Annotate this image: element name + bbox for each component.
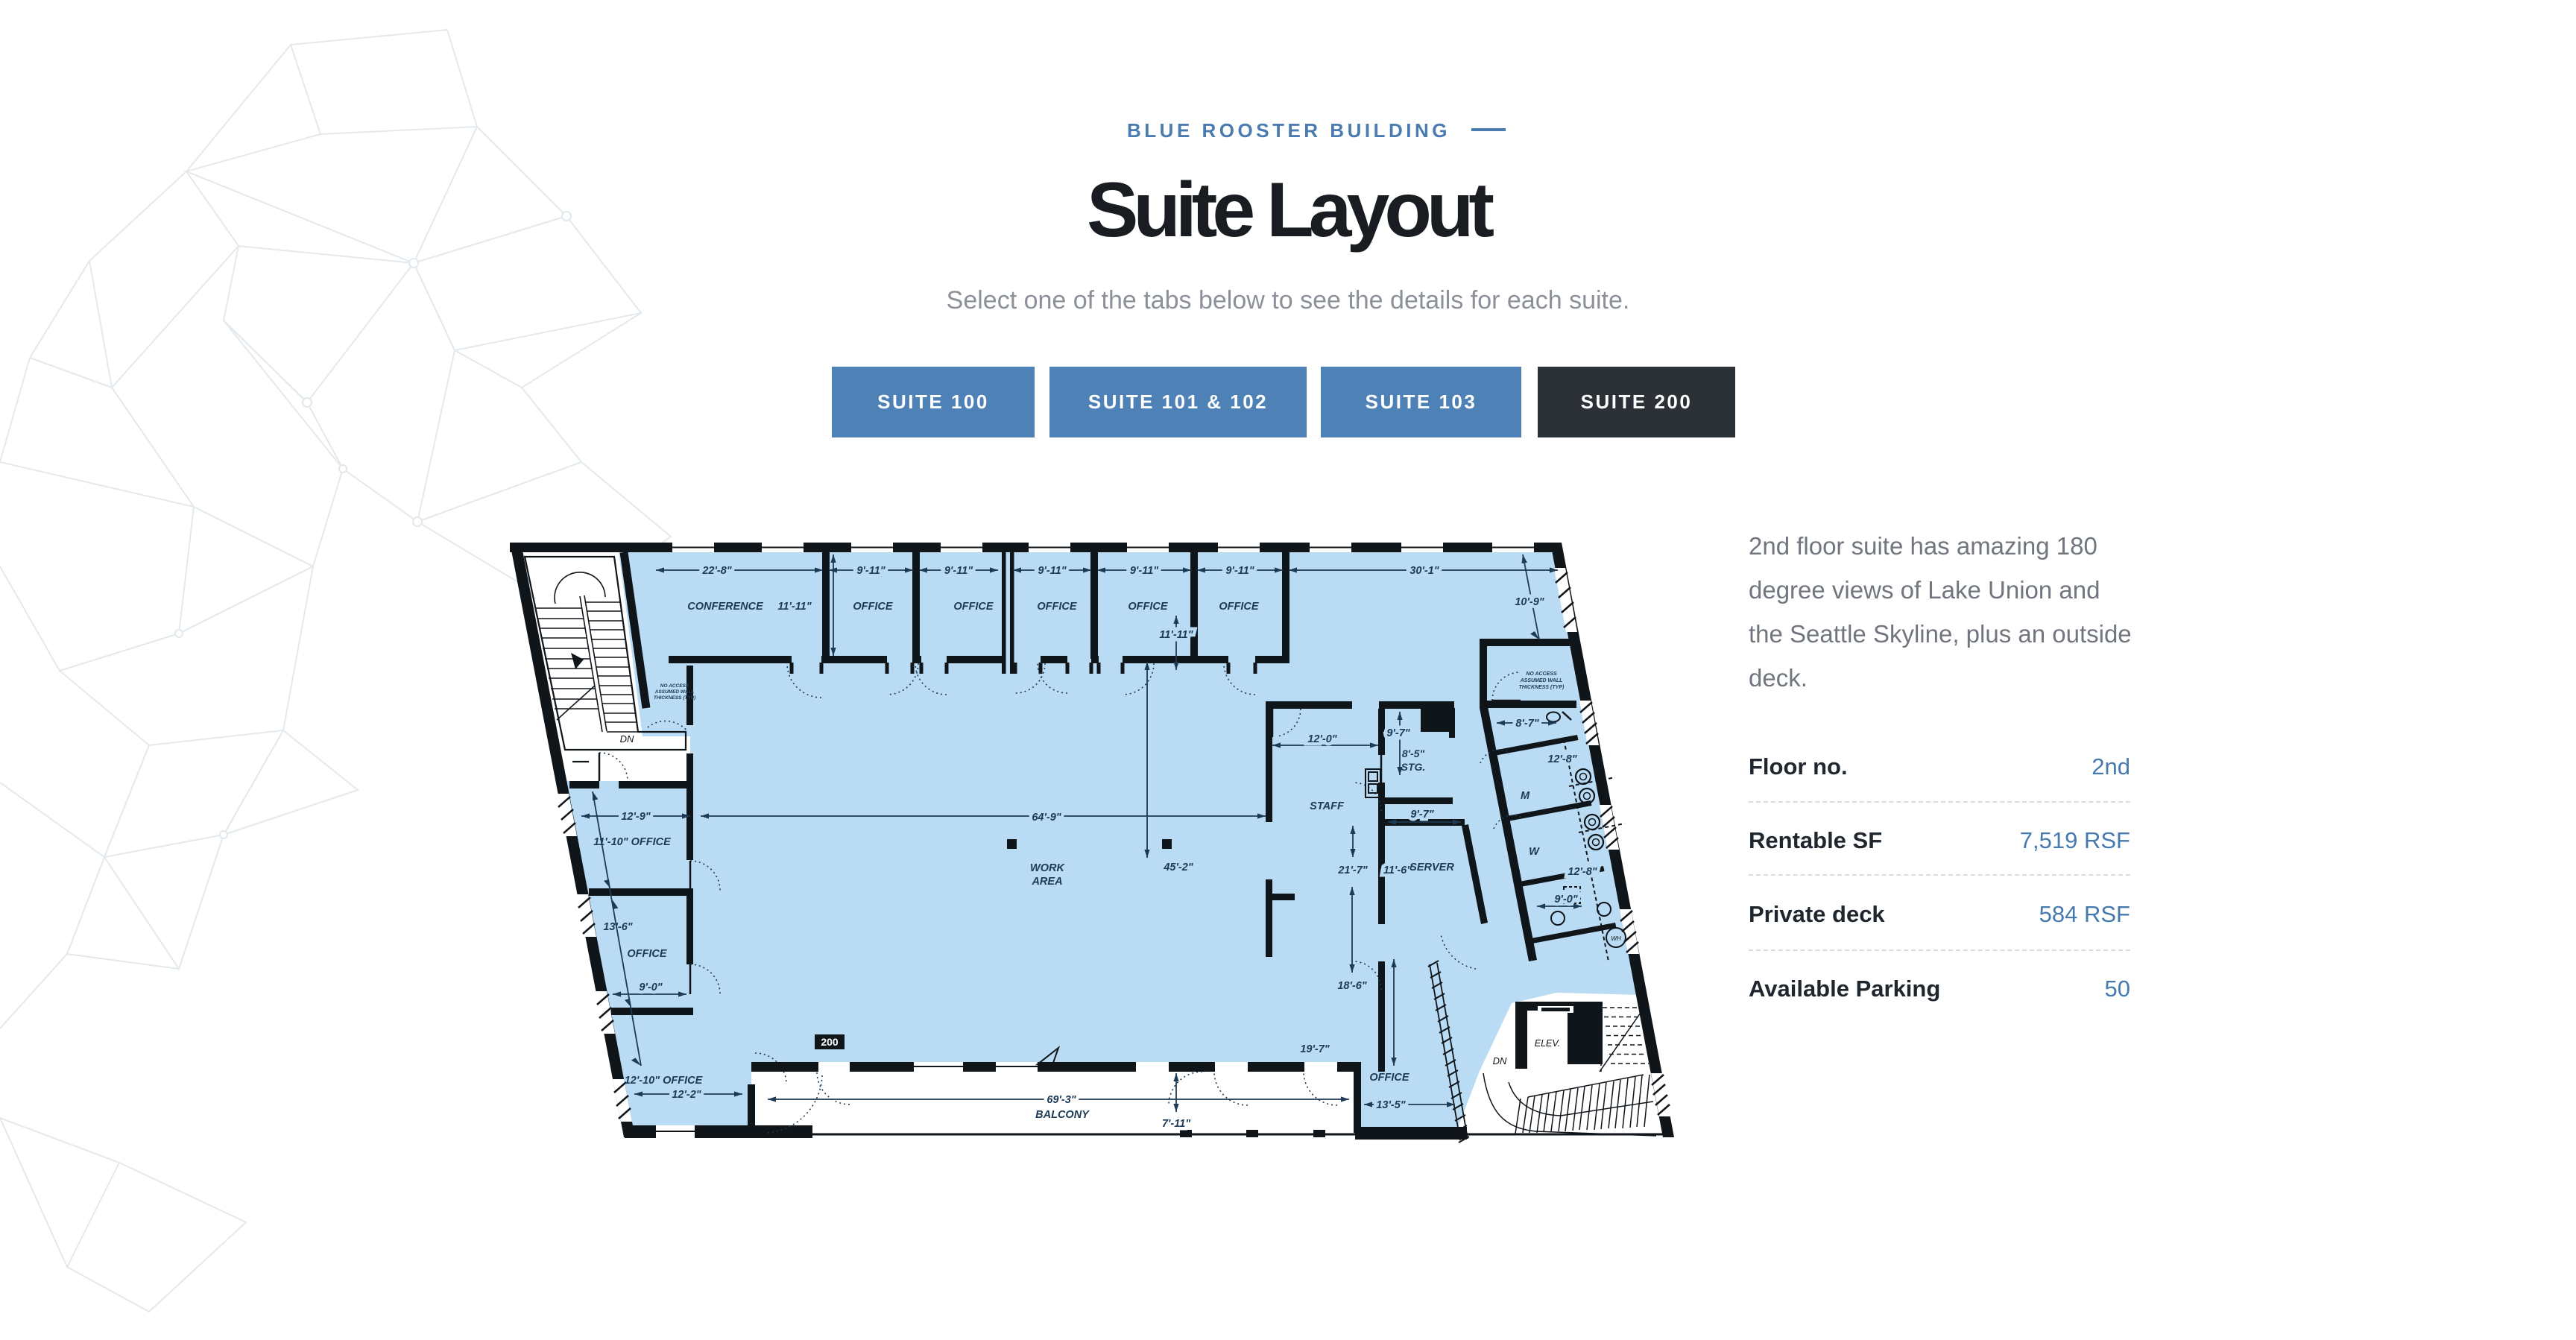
- svg-text:OFFICE: OFFICE: [627, 948, 667, 960]
- svg-text:30'-1": 30'-1": [1409, 565, 1439, 577]
- svg-text:7'-11": 7'-11": [1162, 1118, 1191, 1130]
- svg-text:BALCONY: BALCONY: [1035, 1109, 1090, 1121]
- svg-text:11'-6": 11'-6": [1383, 865, 1412, 876]
- svg-text:THICKNESS (TYP): THICKNESS (TYP): [1519, 685, 1565, 690]
- svg-text:OFFICE: OFFICE: [1128, 601, 1168, 613]
- svg-text:M: M: [1521, 790, 1530, 802]
- svg-text:64'-9": 64'-9": [1032, 812, 1061, 824]
- svg-text:200: 200: [821, 1036, 839, 1048]
- svg-text:DN: DN: [1493, 1055, 1507, 1066]
- svg-text:9'-11": 9'-11": [1038, 565, 1067, 577]
- svg-text:9'-7": 9'-7": [1410, 809, 1434, 821]
- svg-text:45'-2": 45'-2": [1163, 862, 1193, 873]
- svg-text:9'-0": 9'-0": [1554, 894, 1578, 906]
- svg-text:18'-6": 18'-6": [1337, 980, 1367, 992]
- svg-text:10'-9": 10'-9": [1515, 596, 1544, 608]
- svg-text:9'-0": 9'-0": [639, 982, 663, 993]
- svg-text:11'-11": 11'-11": [777, 601, 812, 613]
- svg-text:8'-7": 8'-7": [1515, 718, 1539, 730]
- svg-text:69'-3": 69'-3": [1046, 1094, 1076, 1106]
- svg-text:SERVER: SERVER: [1409, 862, 1454, 873]
- svg-text:9'-11": 9'-11": [944, 565, 973, 577]
- svg-text:STG.: STG.: [1401, 761, 1426, 773]
- svg-text:9'-7": 9'-7": [1386, 727, 1410, 739]
- svg-text:OFFICE: OFFICE: [1369, 1072, 1409, 1084]
- svg-text:W: W: [1529, 846, 1540, 858]
- svg-text:12'-0": 12'-0": [1307, 733, 1337, 745]
- svg-text:OFFICE: OFFICE: [953, 601, 994, 613]
- svg-text:OFFICE: OFFICE: [1219, 601, 1259, 613]
- svg-text:DN: DN: [620, 733, 634, 745]
- svg-text:11'-10" OFFICE: 11'-10" OFFICE: [593, 836, 672, 848]
- svg-text:21'-7": 21'-7": [1337, 865, 1368, 876]
- svg-text:ELEV.: ELEV.: [1535, 1038, 1561, 1049]
- svg-text:12'-2": 12'-2": [672, 1089, 701, 1101]
- svg-text:9'-11": 9'-11": [1225, 565, 1254, 577]
- svg-text:12'-8": 12'-8": [1568, 866, 1597, 878]
- svg-text:19'-7": 19'-7": [1300, 1043, 1330, 1055]
- svg-text:AREA: AREA: [1031, 876, 1062, 888]
- svg-text:ASSUMED WALL: ASSUMED WALL: [654, 689, 695, 695]
- svg-text:NO ACCESS: NO ACCESS: [660, 683, 689, 689]
- svg-text:8'-5": 8'-5": [1402, 748, 1425, 759]
- svg-text:9'-11": 9'-11": [856, 565, 885, 577]
- svg-text:WORK: WORK: [1030, 862, 1065, 874]
- svg-text:11'-11": 11'-11": [1159, 629, 1193, 641]
- svg-text:22'-8": 22'-8": [701, 565, 732, 577]
- svg-text:OFFICE: OFFICE: [1037, 601, 1077, 613]
- svg-text:12'-10" OFFICE: 12'-10" OFFICE: [625, 1075, 704, 1087]
- svg-text:STAFF: STAFF: [1310, 800, 1345, 812]
- svg-text:CONFERENCE: CONFERENCE: [687, 601, 764, 613]
- svg-text:WH: WH: [1611, 935, 1621, 942]
- svg-text:THICKNESS (TYP): THICKNESS (TYP): [654, 695, 695, 701]
- svg-text:ASSUMED WALL: ASSUMED WALL: [1520, 678, 1563, 683]
- svg-text:NO ACCESS: NO ACCESS: [1526, 671, 1557, 677]
- svg-text:OFFICE: OFFICE: [853, 601, 893, 613]
- svg-text:9'-11": 9'-11": [1130, 565, 1159, 577]
- svg-text:13'-5": 13'-5": [1376, 1099, 1406, 1111]
- svg-text:13'-6": 13'-6": [603, 921, 633, 933]
- svg-text:12'-9": 12'-9": [621, 811, 651, 823]
- svg-text:12'-8": 12'-8": [1547, 753, 1577, 765]
